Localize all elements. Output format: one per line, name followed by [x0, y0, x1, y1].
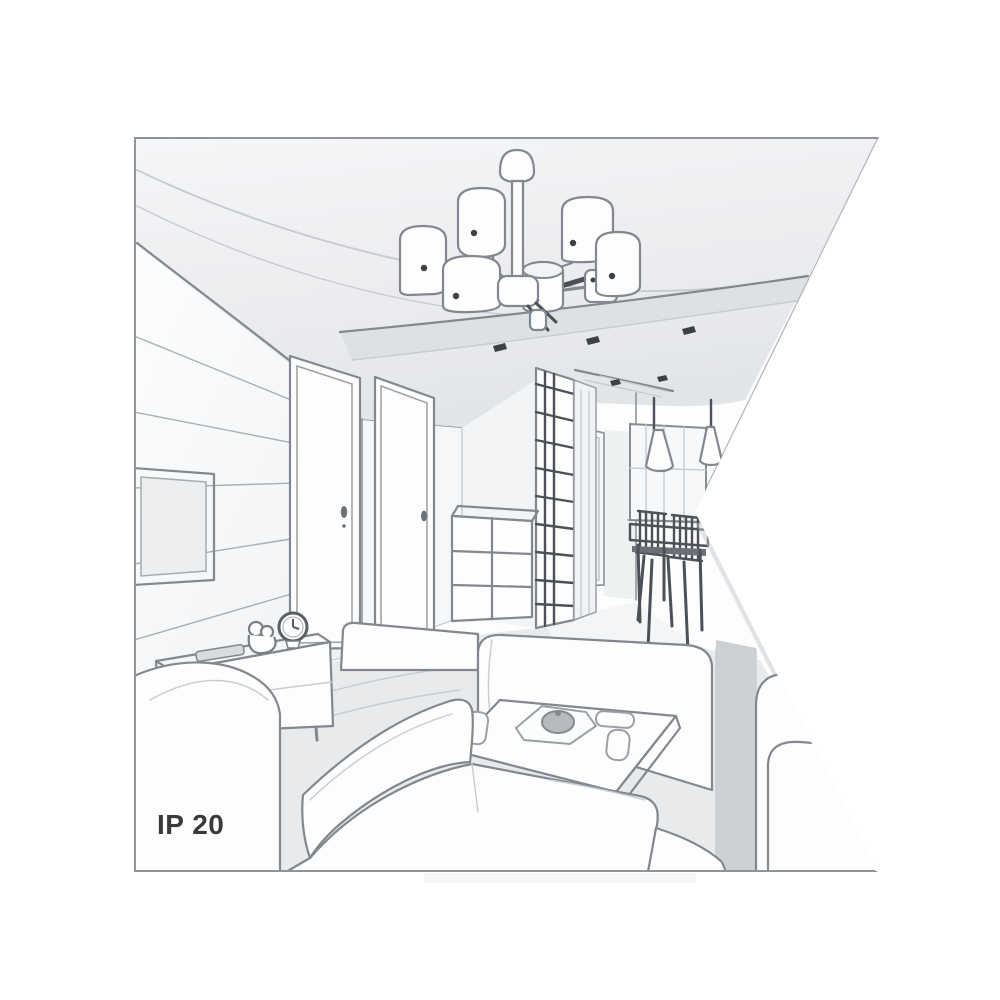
- wardrobe: [536, 368, 596, 628]
- room-illustration: IP 20: [0, 0, 1000, 1000]
- cup: [605, 729, 630, 761]
- wardrobe-side-panel: [574, 380, 596, 620]
- fork-socket: [530, 310, 546, 330]
- screenshot-canvas: IP 20: [0, 0, 1000, 1000]
- drawing-area: IP 20: [133, 137, 880, 873]
- right-sofa-side-shade: [716, 640, 756, 872]
- chandelier-canopy: [500, 150, 534, 182]
- door-middle-handle: [421, 511, 427, 522]
- lamp-shade: [443, 256, 500, 312]
- drawer-cabinet: [452, 506, 538, 621]
- scan-artifact-strip: [424, 873, 696, 883]
- door-left-keyhole: [342, 524, 346, 528]
- lamp-shade: [596, 232, 640, 296]
- lamp-shade: [458, 188, 505, 257]
- teapot-knob: [555, 710, 561, 716]
- tv: [133, 468, 214, 585]
- chandelier-hub: [498, 276, 538, 306]
- door-left-handle: [341, 506, 347, 518]
- tv-screen: [141, 477, 206, 576]
- right-sofa-armrest: [756, 674, 879, 872]
- figurine: [249, 622, 276, 653]
- bracket-screw: [591, 278, 596, 283]
- lamp-shade: [400, 226, 446, 295]
- chandelier-stem: [512, 181, 523, 288]
- corner-sofa-left-armrest: [134, 662, 280, 872]
- window: [628, 424, 708, 523]
- window-frame: [630, 424, 706, 522]
- door-left-frame: [290, 356, 360, 649]
- right-sofa: [700, 522, 879, 872]
- door-middle-frame: [375, 377, 434, 642]
- clock-foot: [286, 641, 300, 648]
- ip-rating-label: IP 20: [157, 809, 224, 840]
- napkin: [595, 711, 634, 729]
